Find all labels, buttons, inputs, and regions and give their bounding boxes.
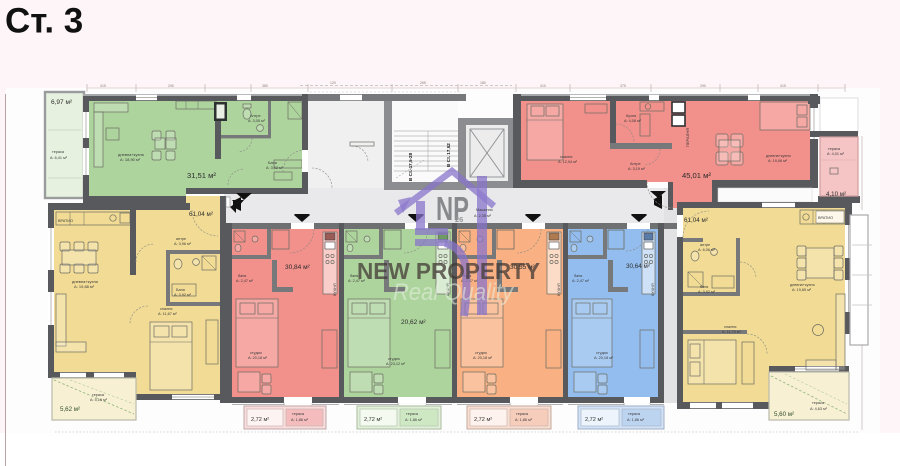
svg-text:А: 6,06 м²: А: 6,06 м² <box>698 248 716 252</box>
svg-text:А: 19,88 м²: А: 19,88 м² <box>74 284 95 289</box>
svg-text:тераса: тераса <box>828 147 841 151</box>
svg-text:студио: студио <box>250 351 262 355</box>
svg-text:120: 120 <box>330 81 336 85</box>
svg-text:А: 3,92 м²: А: 3,92 м² <box>698 290 716 294</box>
svg-text:Ст. 3: Ст. 3 <box>5 2 83 41</box>
svg-text:NP: NP <box>436 190 469 227</box>
svg-text:студио: студио <box>596 351 608 355</box>
svg-text:265: 265 <box>420 81 426 85</box>
svg-text:А: 19,65 м²: А: 19,65 м² <box>792 288 812 292</box>
svg-text:5,60 м²: 5,60 м² <box>774 411 794 418</box>
svg-text:290: 290 <box>168 84 174 88</box>
svg-text:30,84 м²: 30,84 м² <box>285 264 311 271</box>
svg-text:А: 3,92 м²: А: 3,92 м² <box>266 166 284 170</box>
svg-text:ВРАТИО: ВРАТИО <box>818 216 833 220</box>
svg-text:А: 3,05 м²: А: 3,05 м² <box>248 119 266 123</box>
svg-text:спалня: спалня <box>724 325 736 329</box>
svg-text:30,64 м²: 30,64 м² <box>626 263 650 270</box>
svg-text:антре: антре <box>700 243 710 247</box>
svg-text:А: 2,47 м²: А: 2,47 м² <box>236 279 254 283</box>
svg-text:4,10 м²: 4,10 м² <box>826 191 846 198</box>
svg-text:тераса: тераса <box>292 412 305 416</box>
svg-text:спалня: спалня <box>160 307 172 311</box>
svg-text:Баня: Баня <box>268 161 277 165</box>
svg-text:тераса: тераса <box>812 401 825 405</box>
svg-text:КУХНЯ: КУХНЯ <box>557 283 561 296</box>
svg-text:тераса: тераса <box>406 412 419 416</box>
svg-text:Машинно: Машинно <box>476 208 493 212</box>
svg-text:ВРАТИО: ВРАТИО <box>58 219 73 223</box>
svg-text:2,72 м²: 2,72 м² <box>585 417 603 423</box>
svg-text:В Ст.-17,5-28: В Ст.-17,5-28 <box>408 152 413 181</box>
svg-text:26: 26 <box>455 215 463 224</box>
svg-text:2,72 м²: 2,72 м² <box>364 417 382 423</box>
svg-text:А: 3,19 м²: А: 3,19 м² <box>628 167 646 171</box>
svg-text:А: 20,18 м²: А: 20,18 м² <box>594 356 614 360</box>
svg-text:А: 12,04 м²: А: 12,04 м² <box>558 160 578 164</box>
svg-text:А: 4,08 м²: А: 4,08 м² <box>624 119 642 123</box>
svg-text:А: 18,90 м²: А: 18,90 м² <box>120 157 141 162</box>
svg-text:КУХНЯ: КУХНЯ <box>651 283 655 296</box>
svg-text:А: 11,70 м²: А: 11,70 м² <box>722 330 742 334</box>
svg-text:А: 20,18 м²: А: 20,18 м² <box>473 356 493 360</box>
svg-text:тераса: тераса <box>516 412 529 416</box>
svg-text:А: 6,41 м²: А: 6,41 м² <box>50 156 68 160</box>
svg-text:410: 410 <box>540 84 546 88</box>
svg-text:А: 1,86 м²: А: 1,86 м² <box>627 418 645 422</box>
svg-text:тераса: тераса <box>92 393 105 397</box>
svg-text:Кухня: Кухня <box>626 114 636 118</box>
svg-text:ПЕРАЛНЯ: ПЕРАЛНЯ <box>685 128 690 147</box>
svg-text:31,51 м²: 31,51 м² <box>187 171 216 180</box>
svg-text:А: 2,47 м²: А: 2,47 м² <box>572 279 590 283</box>
svg-text:415: 415 <box>100 84 106 88</box>
svg-text:А: 23,12 м²: А: 23,12 м² <box>386 362 406 366</box>
svg-text:2,72 м²: 2,72 м² <box>474 417 492 423</box>
svg-text:45,01 м²: 45,01 м² <box>682 171 711 180</box>
svg-text:20,62 м²: 20,62 м² <box>401 319 427 326</box>
svg-text:дневна+кухня: дневна+кухня <box>790 283 815 287</box>
svg-text:5,62 м²: 5,62 м² <box>60 406 80 413</box>
svg-text:баня: баня <box>574 274 582 278</box>
svg-text:Антре: Антре <box>250 114 261 118</box>
svg-text:290: 290 <box>700 84 706 88</box>
svg-text:А: 3,92 м²: А: 3,92 м² <box>174 293 192 297</box>
svg-text:тераса: тераса <box>52 150 65 154</box>
svg-text:А: 4,01 м²: А: 4,01 м² <box>827 152 845 156</box>
svg-text:тераса: тераса <box>628 412 641 416</box>
svg-text:КУХНЯ: КУХНЯ <box>333 283 337 296</box>
svg-text:студио: студио <box>475 351 487 355</box>
svg-text:А: 11,67 м²: А: 11,67 м² <box>158 312 178 316</box>
svg-text:А: 2,35 м²: А: 2,35 м² <box>474 214 492 218</box>
svg-text:баня: баня <box>238 274 246 278</box>
svg-text:61,04 м²: 61,04 м² <box>684 217 708 224</box>
svg-text:А: 19,06 м²: А: 19,06 м² <box>768 159 788 163</box>
svg-text:Баня: Баня <box>176 288 185 292</box>
svg-text:А: 1,86 м²: А: 1,86 м² <box>291 418 309 422</box>
svg-text:А: 20,18 м²: А: 20,18 м² <box>248 356 268 360</box>
svg-text:380: 380 <box>262 84 268 88</box>
svg-text:А: 3,96 м²: А: 3,96 м² <box>174 242 192 246</box>
svg-text:61,04 м²: 61,04 м² <box>189 211 213 218</box>
svg-text:антре: антре <box>176 237 186 241</box>
svg-text:375: 375 <box>620 84 626 88</box>
svg-text:баня: баня <box>700 285 708 289</box>
svg-text:6,97 м²: 6,97 м² <box>51 99 73 106</box>
svg-text:415: 415 <box>780 84 786 88</box>
svg-text:2,72 м²: 2,72 м² <box>251 417 269 423</box>
svg-text:А: 1,86 м²: А: 1,86 м² <box>405 418 423 422</box>
svg-text:А: 5,16 м²: А: 5,16 м² <box>90 398 108 402</box>
svg-text:Антре: Антре <box>630 162 641 166</box>
svg-text:В Ст. 17,52: В Ст. 17,52 <box>446 143 451 167</box>
svg-text:Real Quality: Real Quality <box>393 279 515 306</box>
svg-text:спалня: спалня <box>560 155 572 159</box>
svg-text:студио: студио <box>388 357 400 361</box>
svg-text:180: 180 <box>480 81 486 85</box>
svg-text:А: 4,63 м²: А: 4,63 м² <box>810 407 828 411</box>
svg-text:А: 1,86 м²: А: 1,86 м² <box>515 418 533 422</box>
svg-text:дневна+кухня: дневна+кухня <box>766 154 791 158</box>
